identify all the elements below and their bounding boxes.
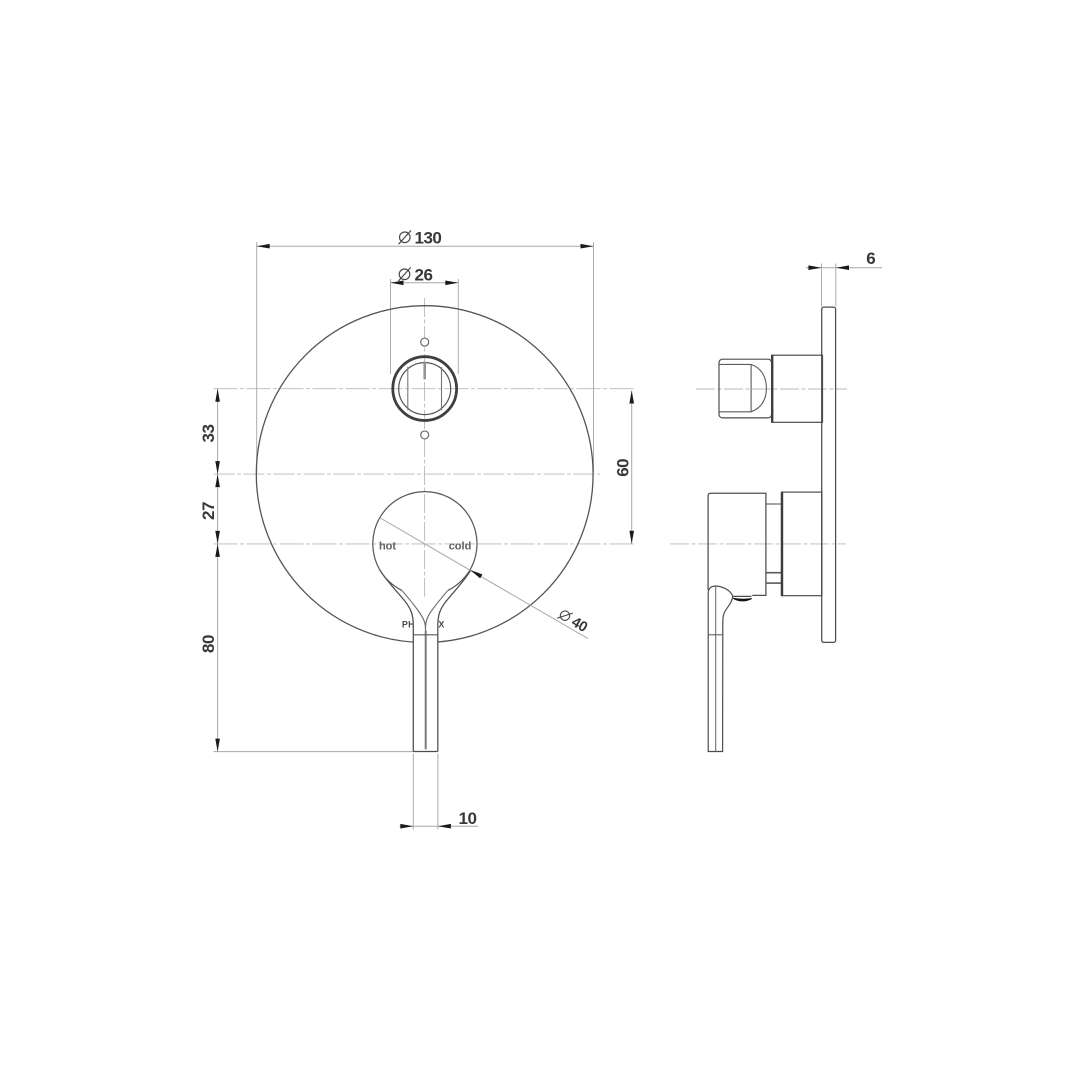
svg-text:cold: cold	[449, 541, 472, 553]
svg-text:26: 26	[415, 265, 433, 284]
svg-text:10: 10	[459, 809, 477, 828]
svg-text:80: 80	[199, 635, 218, 653]
svg-text:60: 60	[614, 459, 633, 477]
svg-text:33: 33	[199, 425, 218, 443]
svg-text:hot: hot	[379, 541, 396, 553]
svg-text:130: 130	[415, 228, 442, 247]
svg-text:27: 27	[199, 502, 218, 520]
svg-text:6: 6	[866, 249, 875, 268]
